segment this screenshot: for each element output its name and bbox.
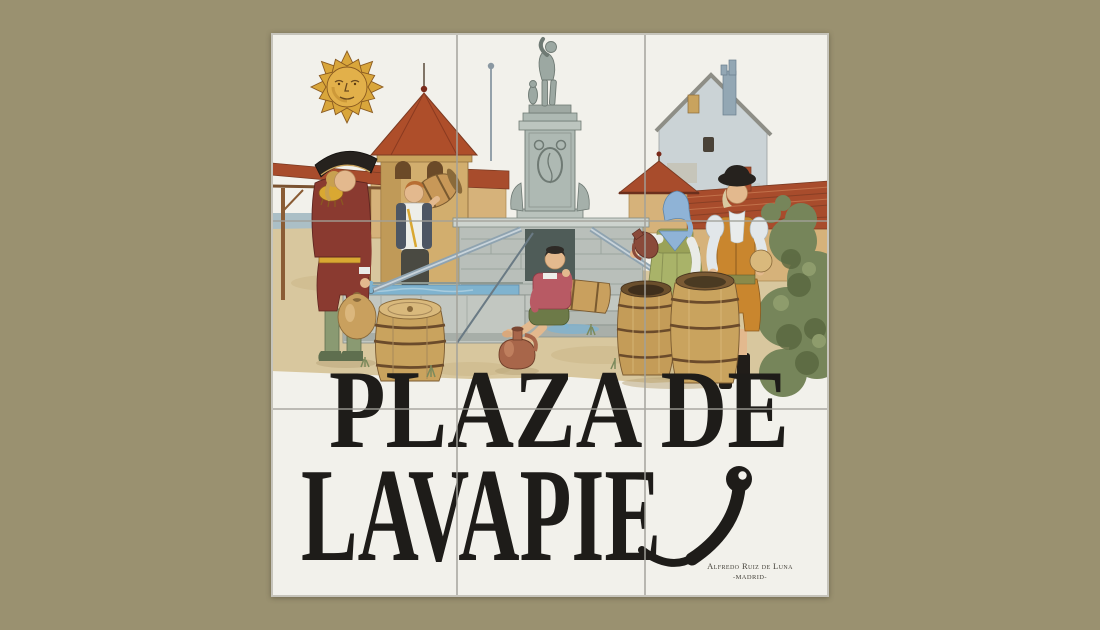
round-loaf <box>750 250 772 272</box>
artist-signature-city: -MADRID- <box>733 574 767 581</box>
tile-sign: PLAZA DE LAVAPIE Alfredo Ruiz de Luna -M… <box>271 33 829 597</box>
sun-icon <box>311 51 383 123</box>
fountain-statue <box>511 39 590 229</box>
photo-background: PLAZA DE LAVAPIE Alfredo Ruiz de Luna -M… <box>0 0 1100 630</box>
painted-scene <box>271 39 829 397</box>
roof-chimney-tan <box>688 95 699 113</box>
artist-signature: Alfredo Ruiz de Luna -MADRID- <box>707 561 793 581</box>
sign-title-line2: LAVAPIE <box>301 441 661 589</box>
lightning-rod <box>488 63 494 161</box>
gable-window <box>703 137 714 152</box>
artist-signature-name: Alfredo Ruiz de Luna <box>707 561 793 571</box>
tall-chimney <box>721 60 736 115</box>
tile-sign-artwork: PLAZA DE LAVAPIE Alfredo Ruiz de Luna -M… <box>271 33 829 597</box>
turret-arch-window <box>395 161 411 179</box>
